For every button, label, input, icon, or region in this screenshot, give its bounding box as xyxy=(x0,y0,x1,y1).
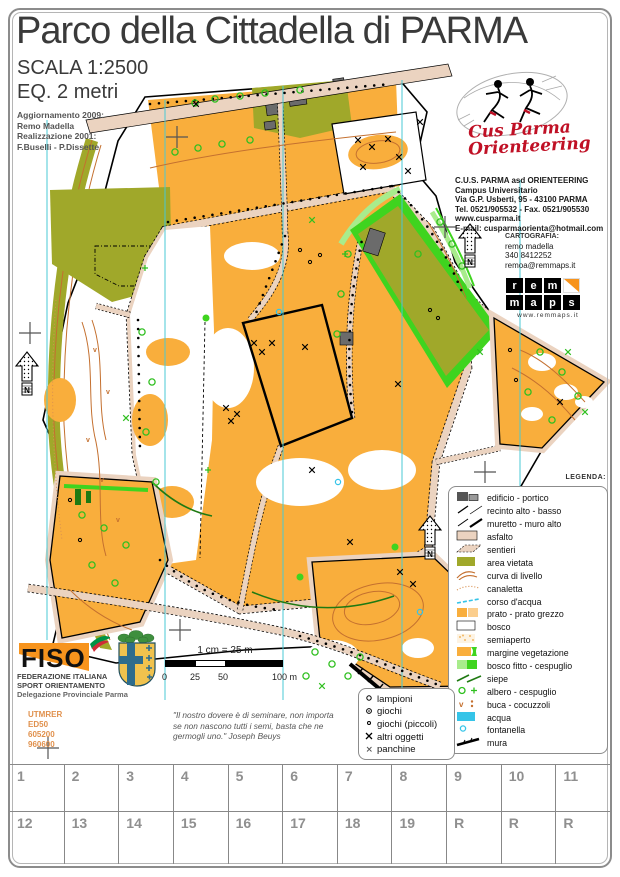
grid-cell: 5 xyxy=(229,765,284,812)
legend-label: curva di livello xyxy=(487,571,542,581)
svg-text:v: v xyxy=(93,347,97,354)
grid-cell: 9 xyxy=(447,765,502,812)
grid-cell: 12 xyxy=(10,812,65,864)
building xyxy=(340,332,353,345)
fiso-line: FEDERAZIONE ITALIANA xyxy=(17,672,128,681)
scalebar-caption: 1 cm = 25 m xyxy=(165,645,285,656)
legend-label: sentieri xyxy=(487,545,515,555)
remmaps-tile: s xyxy=(563,295,580,310)
cartography-block: CARTOGRAFIA: remo madella 340 8412252 re… xyxy=(505,232,575,270)
fiso-logo: FISO xyxy=(18,634,110,674)
legend-label: corso d'acqua xyxy=(487,597,542,607)
credit-line: Aggiornamento 2009: xyxy=(17,110,104,121)
bastion-east xyxy=(494,318,604,448)
control-card-grid: 1 2 3 4 5 6 7 8 9 10 11 12 13 14 15 16 1… xyxy=(10,764,610,866)
grid-cell: 4 xyxy=(174,765,229,812)
legend-label: mura xyxy=(487,738,507,748)
georef-line: 960600 xyxy=(28,740,62,750)
grid-cell: 1 xyxy=(10,765,65,812)
club-info-line: Tel. 0521/905532 - Fax. 0521/905530 xyxy=(455,205,603,215)
legend-label: albero - cespuglio xyxy=(487,687,556,697)
grid-cell: 19 xyxy=(392,812,447,864)
grid-cell: 17 xyxy=(283,812,338,864)
equidistance-label: EQ. 2 metri xyxy=(17,81,118,104)
mini-legend-label: giochi (piccoli) xyxy=(377,719,437,730)
club-info-line: Via G.P. Usberti, 95 - 43100 PARMA xyxy=(455,195,603,205)
remmaps-tile: p xyxy=(544,295,561,310)
remmaps-triangle-icon xyxy=(563,278,580,293)
svg-text:v: v xyxy=(106,389,110,396)
remmaps-site: www.remmaps.it xyxy=(506,312,590,319)
grid-cell: 15 xyxy=(174,812,229,864)
legend-label: area vietata xyxy=(487,558,533,568)
grid-cell: 14 xyxy=(119,812,174,864)
legend-label: bosco fitto - cespuglio xyxy=(487,661,572,671)
legend-label: recinto alto - basso xyxy=(487,506,561,516)
remmaps-tile: a xyxy=(525,295,542,310)
legend-label: fontanella xyxy=(487,725,525,735)
fiso-line: SPORT ORIENTAMENTO xyxy=(17,681,128,690)
map-credits: Aggiornamento 2009: Remo Madella Realizz… xyxy=(17,110,104,152)
credit-line: Realizzazione 2001: xyxy=(17,131,104,142)
grid-cell: 13 xyxy=(65,812,120,864)
scalebar-tick: 50 xyxy=(218,672,228,682)
panchine-icon xyxy=(364,741,377,759)
fiso-logo-text: FISO xyxy=(21,643,86,673)
club-name: Cus Parma Orienteering xyxy=(439,118,601,160)
grid-cell: 7 xyxy=(338,765,393,812)
grid-cell: 6 xyxy=(283,765,338,812)
mini-legend-label: giochi xyxy=(377,706,402,717)
page-title: Parco della Cittadella di PARMA xyxy=(16,10,527,53)
georeference-block: UTMRER ED50 605200 960600 xyxy=(28,710,62,750)
remmaps-tile: m xyxy=(544,278,561,293)
parma-coat-of-arms xyxy=(114,628,160,692)
club-info-line: Campus Universitario xyxy=(455,186,603,196)
legend-label: asfalto xyxy=(487,532,513,542)
grid-cell: 18 xyxy=(338,812,393,864)
club-info-line: C.U.S. PARMA asd ORIENTEERING xyxy=(455,176,603,186)
legend-label: buca - cocuzzoli xyxy=(487,700,550,710)
mini-legend-label: panchine xyxy=(377,744,416,755)
legend-label: muretto - muro alto xyxy=(487,519,561,529)
club-info-line: www.cusparma.it xyxy=(455,214,603,224)
map-sheet: N xyxy=(0,0,620,877)
grid-cell: 11 xyxy=(556,765,610,812)
grid-cell: 8 xyxy=(392,765,447,812)
legend-label: siepe xyxy=(487,674,508,684)
legend-label: semiaperto xyxy=(487,635,531,645)
scalebar xyxy=(165,660,283,667)
grid-cell: 16 xyxy=(229,812,284,864)
remmaps-tile: m xyxy=(506,295,523,310)
legend-label: edificio - portico xyxy=(487,493,549,503)
club-contact-info: C.U.S. PARMA asd ORIENTEERING Campus Uni… xyxy=(455,176,603,234)
credit-line: F.Buselli - P.Dissette xyxy=(17,142,104,153)
georef-line: ED50 xyxy=(28,720,62,730)
svg-text:v: v xyxy=(459,700,464,709)
cartography-line: remo madella xyxy=(505,242,575,252)
mini-legend-label: lampioni xyxy=(377,694,412,705)
cartography-heading: CARTOGRAFIA: xyxy=(505,232,575,242)
legend-heading: LEGENDA: xyxy=(0,474,606,481)
svg-text:v: v xyxy=(116,517,120,524)
grid-cell: 2 xyxy=(65,765,120,812)
legend-label: acqua xyxy=(487,713,511,723)
cartography-line: remoa@remmaps.it xyxy=(505,261,575,271)
svg-text:v: v xyxy=(86,437,90,444)
legend-label: bosco xyxy=(487,622,510,632)
georef-line: UTMRER xyxy=(28,710,62,720)
bastion-ne xyxy=(332,112,426,194)
grid-cell: R xyxy=(502,812,557,864)
map-scale-label: SCALA 1:2500 xyxy=(17,57,148,80)
credit-line: Remo Madella xyxy=(17,121,104,132)
legend-icon-mura xyxy=(455,734,487,752)
legend-label: margine vegetazione xyxy=(487,648,569,658)
grid-cell: 3 xyxy=(119,765,174,812)
cartography-line: 340 8412252 xyxy=(505,251,575,261)
legend-label: canaletta xyxy=(487,584,523,594)
grid-cell: R xyxy=(447,812,502,864)
remmaps-tile: r xyxy=(506,278,523,293)
quote-text: "Il nostro dovere è di seminare, non imp… xyxy=(173,710,343,742)
fiso-text: FEDERAZIONE ITALIANA SPORT ORIENTAMENTO … xyxy=(17,672,128,699)
scalebar-tick: 100 m xyxy=(272,672,297,682)
grid-cell: R xyxy=(556,812,610,864)
fiso-line: Delegazione Provinciale Parma xyxy=(17,690,128,699)
mini-legend-label: altri oggetti xyxy=(377,732,423,743)
legend-label: prato - prato grezzo xyxy=(487,609,564,619)
remmaps-tile: e xyxy=(525,278,542,293)
mini-legend-box: lampioni giochi giochi (piccoli) altri o… xyxy=(358,688,455,760)
scalebar-tick: 25 xyxy=(190,672,200,682)
georef-line: 605200 xyxy=(28,730,62,740)
grid-cell: 10 xyxy=(502,765,557,812)
scalebar-tick: 0 xyxy=(162,672,167,682)
legend-box: edificio - portico recinto alto - basso … xyxy=(448,486,608,754)
remmaps-logo: r e m m a p s www.remmaps.it xyxy=(506,278,590,319)
